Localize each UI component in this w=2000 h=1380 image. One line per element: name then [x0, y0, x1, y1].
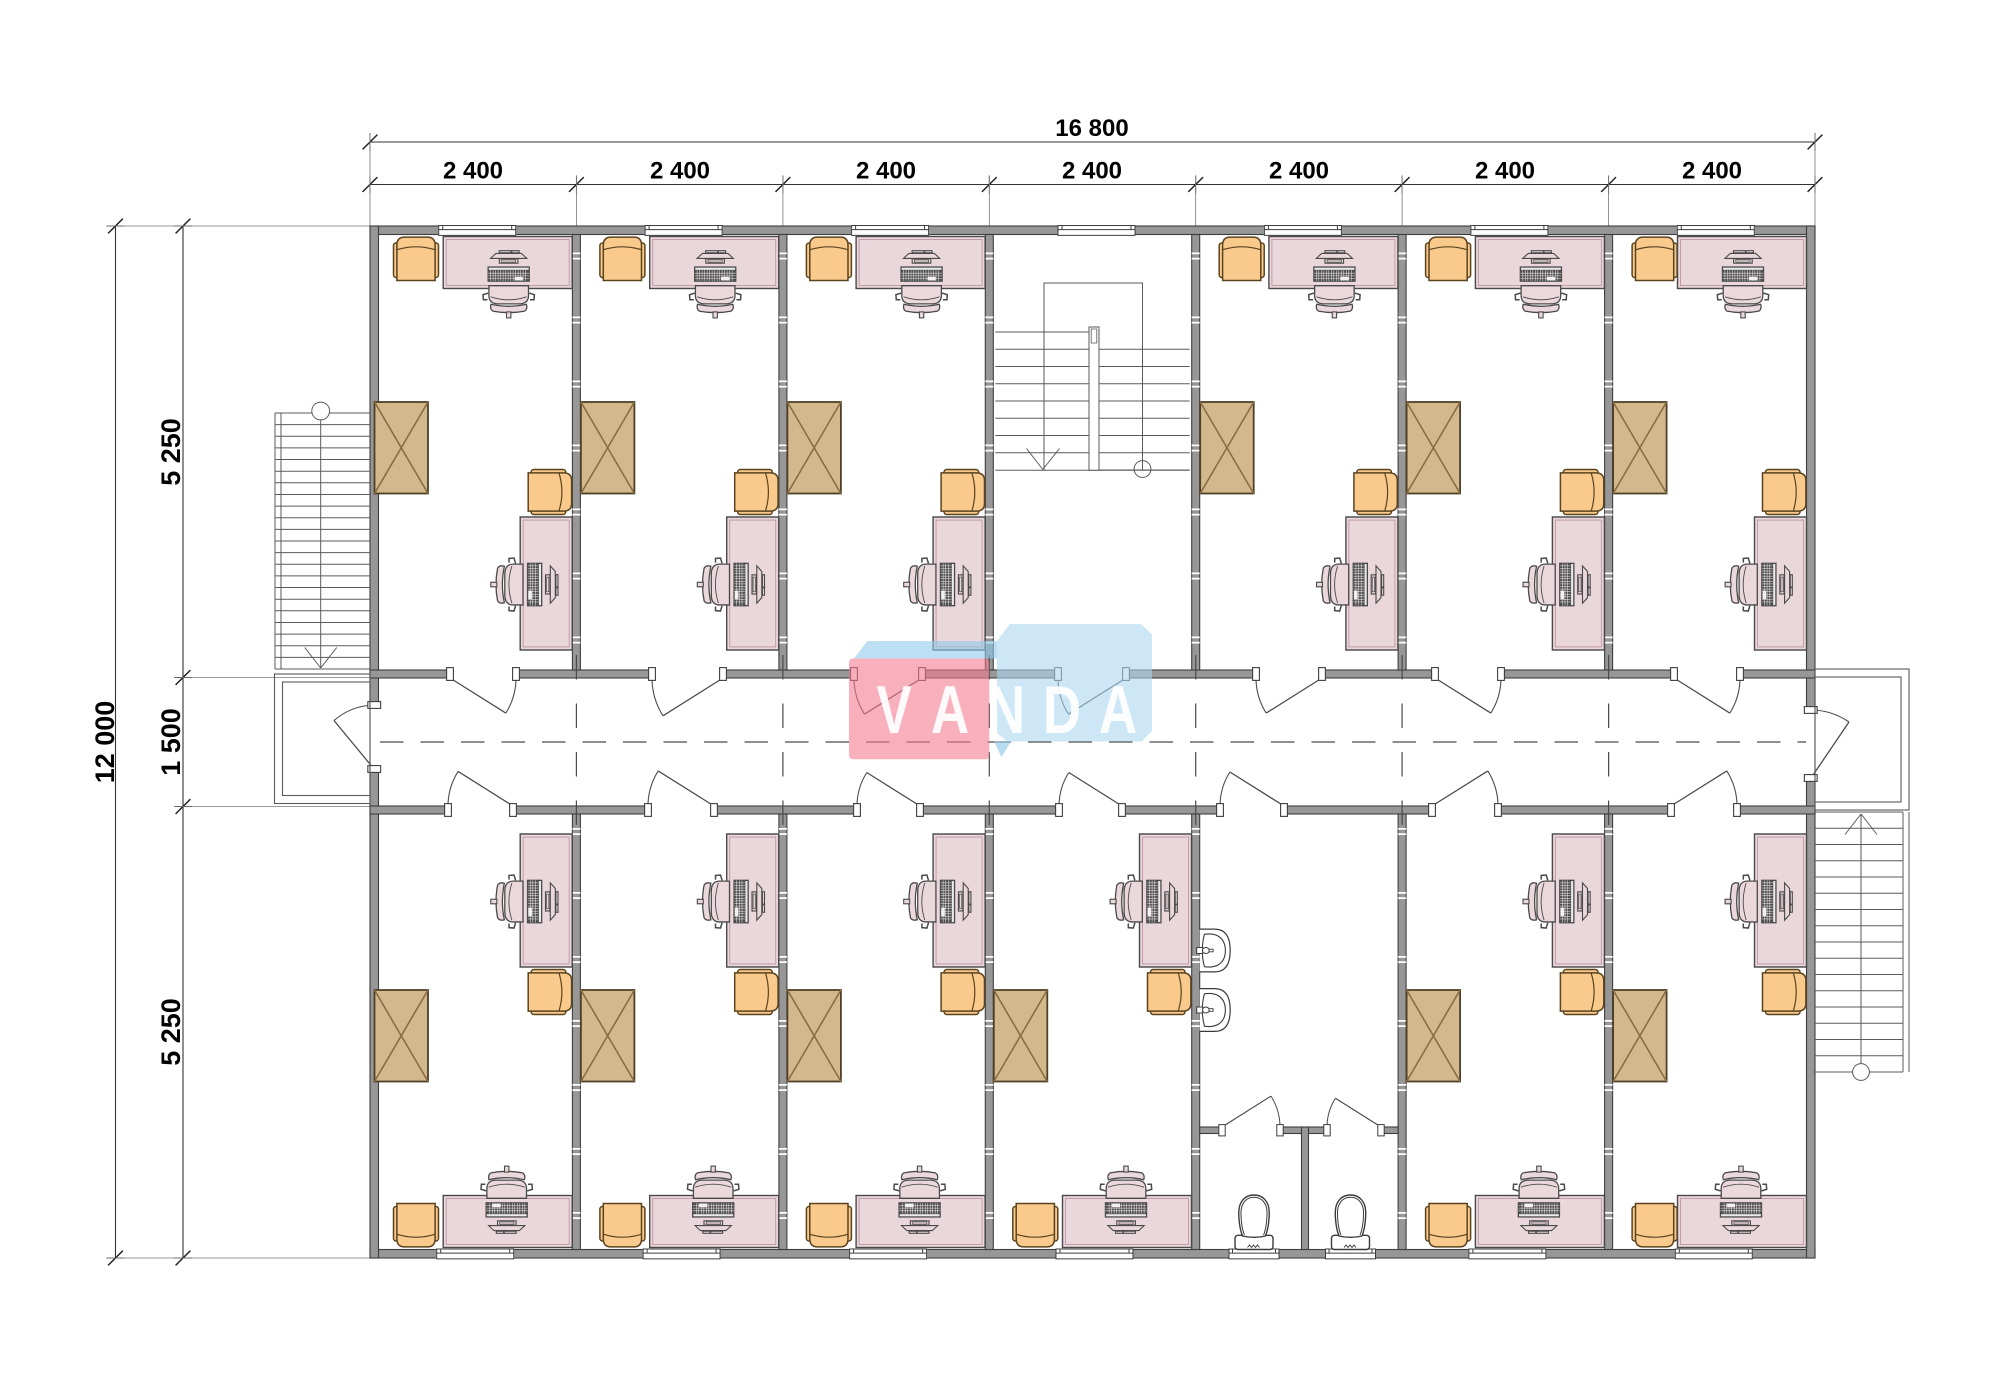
svg-text:2 400: 2 400 — [1062, 158, 1122, 185]
svg-text:2 400: 2 400 — [1269, 158, 1329, 185]
svg-text:2 400: 2 400 — [1682, 158, 1742, 185]
svg-text:2 400: 2 400 — [443, 158, 503, 185]
svg-text:N: N — [987, 672, 1025, 748]
svg-text:5 250: 5 250 — [156, 418, 186, 486]
svg-text:5 250: 5 250 — [156, 998, 186, 1066]
svg-text:V: V — [876, 672, 912, 748]
svg-text:D: D — [1043, 672, 1081, 748]
svg-text:2 400: 2 400 — [650, 158, 710, 185]
svg-text:1 500: 1 500 — [156, 708, 186, 776]
svg-text:16 800: 16 800 — [1055, 115, 1128, 142]
svg-text:2 400: 2 400 — [856, 158, 916, 185]
svg-text:A: A — [931, 672, 969, 748]
svg-text:A: A — [1099, 672, 1137, 748]
svg-text:2 400: 2 400 — [1475, 158, 1535, 185]
svg-text:12 000: 12 000 — [90, 701, 120, 784]
